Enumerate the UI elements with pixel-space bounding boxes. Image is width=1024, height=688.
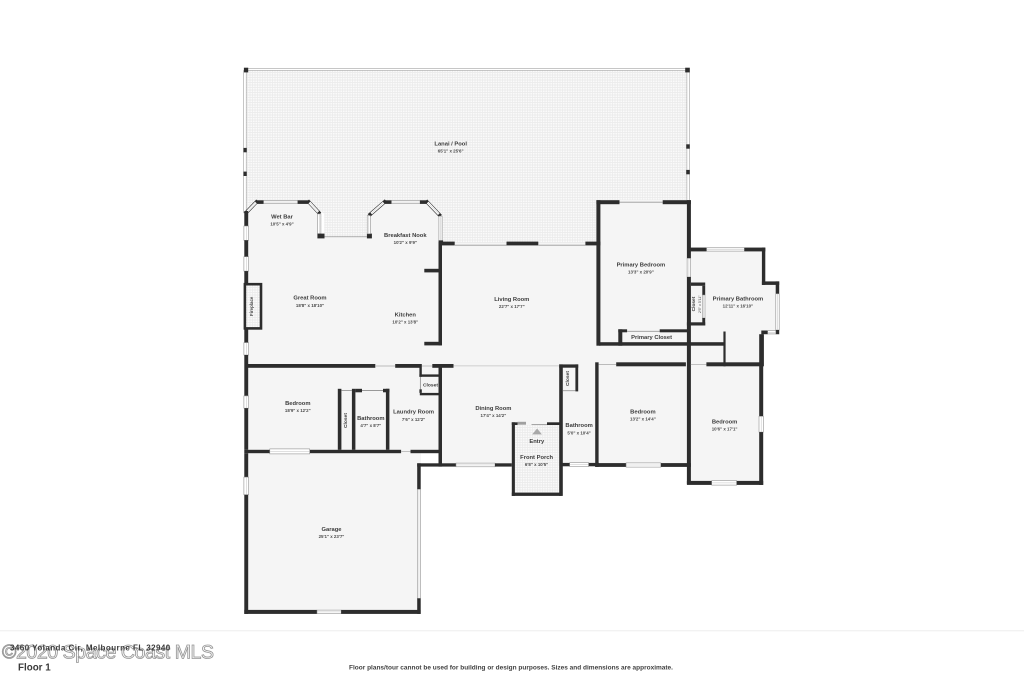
svg-text:18'9" x 12'2": 18'9" x 12'2" [285, 408, 311, 413]
svg-text:3460 Yolanda Cir, Melbourne FL: 3460 Yolanda Cir, Melbourne FL 32940 [10, 644, 171, 653]
svg-text:25'1" x 23'7": 25'1" x 23'7" [319, 534, 345, 539]
svg-text:Entry: Entry [529, 439, 545, 445]
svg-text:6'8" x 10'5": 6'8" x 10'5" [525, 462, 548, 467]
svg-text:Bathroom: Bathroom [357, 416, 384, 422]
svg-text:18'8" x 18'10": 18'8" x 18'10" [296, 303, 324, 308]
svg-text:Breakfast Nook: Breakfast Nook [384, 233, 427, 239]
svg-text:Front Porch: Front Porch [520, 455, 553, 461]
svg-text:Wet Bar: Wet Bar [271, 214, 294, 220]
svg-text:Garage: Garage [322, 527, 343, 533]
svg-text:10'2" x 13'8": 10'2" x 13'8" [392, 320, 418, 325]
svg-text:65'1" x 25'6": 65'1" x 25'6" [438, 149, 464, 154]
svg-text:4'7" x 8'7": 4'7" x 8'7" [360, 423, 381, 428]
svg-text:17'4" x 14'2": 17'4" x 14'2" [481, 413, 507, 418]
svg-text:Closet: Closet [343, 413, 349, 428]
svg-text:Dining Room: Dining Room [475, 406, 511, 412]
svg-text:10'5" x 4'9": 10'5" x 4'9" [270, 221, 293, 226]
svg-text:Lanai / Pool: Lanai / Pool [434, 142, 467, 148]
svg-text:Bedroom: Bedroom [630, 410, 655, 416]
svg-text:22'7" x 17'7": 22'7" x 17'7" [499, 304, 525, 309]
svg-text:2'6" x 5'11": 2'6" x 5'11" [698, 295, 702, 314]
svg-text:Primary Bedroom: Primary Bedroom [617, 263, 666, 269]
svg-text:5'0" x 10'4": 5'0" x 10'4" [567, 430, 590, 435]
svg-text:Closet: Closet [691, 296, 697, 311]
svg-text:13'2" x 14'4": 13'2" x 14'4" [630, 417, 656, 422]
svg-text:Living Room: Living Room [494, 297, 529, 303]
svg-text:Primary Bathroom: Primary Bathroom [713, 296, 764, 302]
svg-text:Great Room: Great Room [293, 296, 326, 302]
svg-text:12'11" x 16'10": 12'11" x 16'10" [723, 304, 753, 309]
svg-text:Primary Closet: Primary Closet [631, 335, 672, 341]
svg-text:Closet: Closet [423, 383, 438, 389]
svg-text:10'2" x 9'9": 10'2" x 9'9" [394, 240, 417, 245]
svg-text:7'6" x 12'2": 7'6" x 12'2" [402, 417, 425, 422]
svg-text:Fireplace: Fireplace [249, 296, 254, 316]
svg-text:10'6" x 17'1": 10'6" x 17'1" [712, 427, 738, 432]
svg-text:Bedroom: Bedroom [712, 420, 737, 426]
svg-text:Floor plans/tour cannot be use: Floor plans/tour cannot be used for buil… [349, 665, 673, 672]
svg-text:Kitchen: Kitchen [395, 312, 417, 318]
svg-text:Laundry Room: Laundry Room [393, 410, 434, 416]
svg-text:Floor 1: Floor 1 [18, 663, 51, 674]
svg-text:Closet: Closet [565, 371, 571, 386]
svg-text:Bathroom: Bathroom [565, 423, 592, 429]
svg-text:Bedroom: Bedroom [285, 401, 310, 407]
svg-text:13'3" x 20'9": 13'3" x 20'9" [628, 270, 654, 275]
